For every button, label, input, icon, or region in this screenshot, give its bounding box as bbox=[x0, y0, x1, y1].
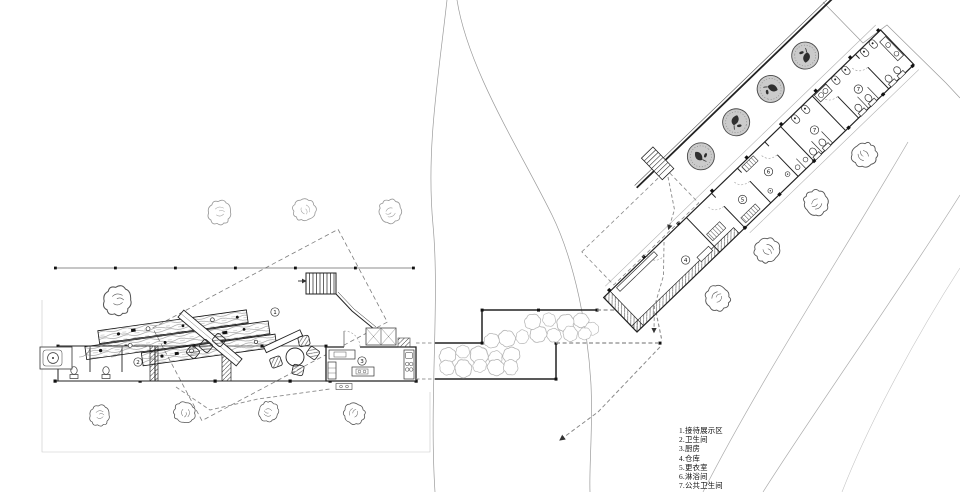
room-number-public-toilet-b: 7 bbox=[854, 85, 862, 93]
building-outline bbox=[604, 30, 914, 332]
room-number-restroom: 2 bbox=[134, 358, 142, 366]
svg-text:4: 4 bbox=[684, 258, 688, 264]
toilet-icon bbox=[102, 367, 110, 379]
skylight bbox=[366, 328, 410, 347]
room-number-shower: 6 bbox=[764, 167, 772, 175]
legend-item: 3.厨房 bbox=[679, 444, 723, 453]
path-dashed bbox=[176, 387, 330, 410]
door-swing-arc bbox=[344, 331, 360, 347]
room-number-kitchen: 3 bbox=[358, 357, 366, 365]
plan-drawing: 4 5 6 7 7 1 2 3 bbox=[0, 0, 960, 492]
svg-text:6: 6 bbox=[767, 170, 771, 176]
legend-item: 5.更衣室 bbox=[679, 463, 723, 472]
legend-item: 4.仓库 bbox=[679, 454, 723, 463]
tree-icon bbox=[799, 185, 833, 220]
room-number-changing: 5 bbox=[738, 195, 746, 203]
stool-icon bbox=[269, 355, 283, 368]
tree-icon bbox=[847, 138, 882, 172]
equipment-box bbox=[336, 384, 352, 390]
svg-text:7: 7 bbox=[857, 87, 861, 93]
svg-text:7: 7 bbox=[813, 128, 817, 134]
tree-icon bbox=[754, 72, 787, 105]
legend-item: 6.淋浴间 bbox=[679, 472, 723, 481]
slope-stair bbox=[641, 147, 673, 180]
tree-icon bbox=[90, 405, 110, 426]
tree-icon bbox=[208, 200, 231, 225]
legend-item: 7.公共卫生间 bbox=[679, 481, 723, 490]
room-number-reception: 1 bbox=[271, 308, 279, 316]
stool-icon bbox=[298, 335, 311, 347]
stool-icon bbox=[292, 364, 305, 376]
tree-icon bbox=[376, 196, 405, 226]
tree-icon bbox=[290, 196, 319, 224]
tree-icon bbox=[790, 41, 820, 71]
stair bbox=[298, 273, 376, 329]
tree-icon bbox=[700, 280, 735, 315]
svg-text:2: 2 bbox=[136, 360, 140, 366]
room-number-storage: 4 bbox=[681, 256, 689, 264]
legend-item: 1.接待展示区 bbox=[679, 426, 723, 435]
counter bbox=[329, 350, 355, 359]
left-building bbox=[40, 267, 418, 390]
cabinet bbox=[328, 362, 336, 379]
room-number-public-toilet-a: 7 bbox=[810, 126, 818, 134]
kitchen bbox=[326, 328, 416, 390]
legend-item: 2.卫生间 bbox=[679, 435, 723, 444]
svg-text:5: 5 bbox=[741, 197, 745, 203]
path-dashed bbox=[560, 347, 660, 440]
stool-icon bbox=[306, 346, 321, 361]
svg-text:3: 3 bbox=[360, 359, 364, 365]
tree-icon bbox=[719, 106, 752, 139]
svg-text:1: 1 bbox=[273, 310, 277, 316]
tree-icon bbox=[749, 232, 784, 267]
tree-icon bbox=[103, 286, 131, 316]
stepping-stones bbox=[439, 310, 601, 380]
legend: 1.接待展示区 2.卫生间 3.厨房 4.仓库 5.更衣室 6.淋浴间 7.公共… bbox=[679, 426, 723, 490]
tree-icon bbox=[339, 399, 368, 428]
tree-icon bbox=[682, 137, 720, 175]
round-table-icon bbox=[286, 348, 304, 366]
site-plan: 4 5 6 7 7 1 2 3 1.接待展示区 2.卫生间 3.厨房 4.仓库 … bbox=[0, 0, 960, 492]
tree-icon bbox=[256, 399, 281, 425]
